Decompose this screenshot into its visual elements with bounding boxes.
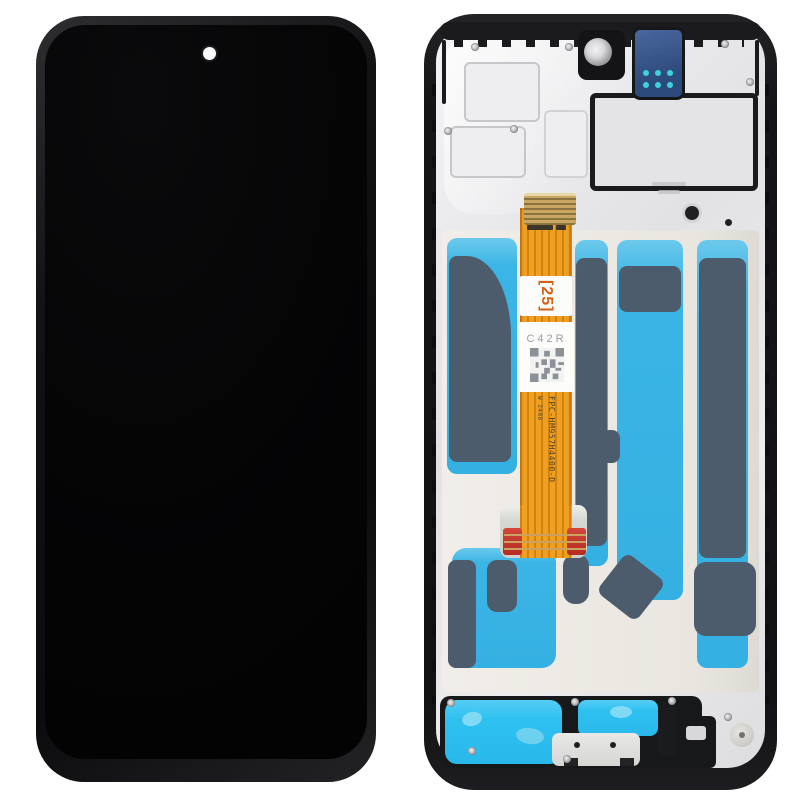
foam-pad: [619, 266, 681, 312]
stamped-recess: [464, 62, 540, 122]
foam-pad: [563, 554, 589, 604]
connector-pin: [667, 82, 673, 88]
flex-part-marking: W 2408 FPC-HM957H4400-D: [520, 396, 572, 522]
screw-hole: [565, 43, 573, 51]
screw-hole: [468, 747, 476, 755]
flex-cable-end: [520, 505, 572, 558]
screw-hole: [746, 78, 754, 86]
frame-cutout: [658, 702, 676, 756]
flex-trace-line: [504, 534, 586, 536]
foam-pad: [601, 430, 620, 463]
bracket-notch: [620, 758, 634, 766]
camera-plate-region: [590, 93, 758, 191]
flex-print-marking: [556, 225, 566, 230]
flex-print-marking: [527, 225, 553, 230]
lcd-screen: [45, 25, 367, 759]
flex-number-text: [25]: [537, 280, 555, 312]
adhesive-highlight: [610, 706, 632, 718]
bracket-hole: [610, 742, 616, 748]
alignment-hole: [685, 206, 699, 220]
flex-number-box: [25]: [520, 276, 572, 316]
screw-hole: [447, 699, 455, 707]
flex-id-label: C42R: [519, 322, 574, 392]
screw-hole: [444, 127, 452, 135]
flex-gold-connector: [524, 193, 576, 225]
alignment-hole: [725, 219, 732, 226]
connector-pin: [643, 70, 649, 76]
camera-flex-connector: [632, 27, 685, 100]
flex-batch-text: W 2408: [536, 396, 543, 522]
screw-hole: [724, 713, 732, 721]
connector-pin: [655, 70, 661, 76]
foam-pad: [487, 560, 517, 612]
stamped-recess: [450, 126, 526, 178]
qr-code-graphic: [530, 348, 564, 382]
gasket-segment-right: [755, 40, 759, 96]
flex-trace-line: [504, 548, 586, 550]
screw-hole: [510, 125, 518, 133]
screw-boss-center: [739, 732, 745, 738]
gasket-segment-left: [442, 40, 446, 104]
metal-island: [686, 726, 706, 740]
camera-lens-hole: [584, 38, 612, 66]
flex-trace-line: [504, 541, 586, 543]
label-code-text: C42R: [526, 333, 566, 345]
product-photo: [25] C42R W 2408 FPC-HM957H4400-D: [0, 0, 800, 800]
connector-pin: [655, 82, 661, 88]
foam-pad: [448, 560, 476, 668]
foam-pad: [694, 562, 756, 636]
screw-hole: [571, 698, 579, 706]
adhesive-patch-bottom: [445, 700, 562, 764]
phone-front-view: [36, 16, 376, 782]
foam-pad: [576, 258, 607, 546]
frame-back-view: [25] C42R W 2408 FPC-HM957H4400-D: [424, 14, 777, 790]
connector-pin: [667, 70, 673, 76]
stamped-recess: [544, 110, 588, 178]
connector-pin: [643, 82, 649, 88]
engraved-marking: [652, 182, 686, 186]
screw-hole: [721, 40, 729, 48]
bracket-hole: [574, 742, 580, 748]
screw-hole: [471, 43, 479, 51]
foam-pad: [449, 256, 511, 462]
frame-cutout: [676, 716, 716, 768]
screw-hole: [668, 697, 676, 705]
foam-pad: [699, 258, 746, 558]
flex-part-number-text: FPC-HM957H4400-D: [547, 396, 556, 522]
screw-hole: [563, 755, 571, 763]
front-camera-hole: [203, 47, 216, 60]
engraved-marking: [658, 190, 680, 194]
